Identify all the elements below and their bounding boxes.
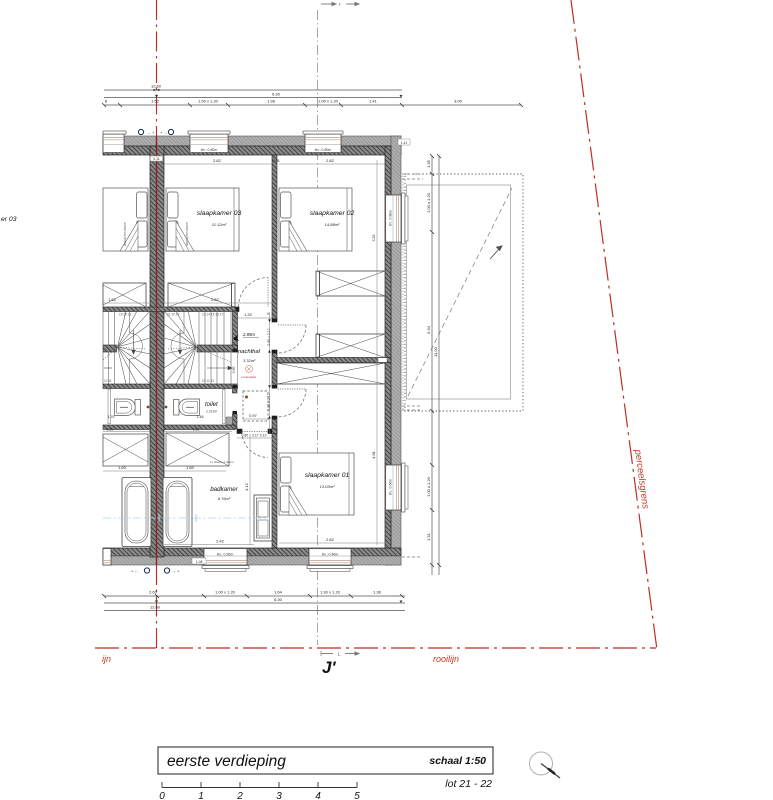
svg-text:6.30: 6.30	[274, 597, 283, 602]
svg-text:2.82: 2.82	[326, 158, 335, 163]
svg-text:0.11: 0.11	[153, 157, 160, 161]
svg-text:1.08: 1.08	[196, 560, 203, 564]
svg-text:14.88m²: 14.88m²	[325, 222, 340, 227]
svg-text:5: 5	[354, 791, 360, 800]
svg-text:8.76m²: 8.76m²	[218, 496, 231, 501]
svg-text:5.94: 5.94	[426, 325, 431, 334]
svg-text:J': J'	[322, 658, 336, 677]
svg-text:1.00 x 1.20: 1.00 x 1.20	[426, 476, 431, 497]
svg-text:toilet: toilet	[205, 402, 218, 408]
svg-text:bh.: 0.60m: bh.: 0.60m	[389, 479, 393, 496]
svg-text:L: L	[338, 652, 341, 658]
svg-text:0.90: 0.90	[232, 367, 236, 374]
svg-text:eerste verdieping: eerste verdieping	[167, 753, 286, 770]
svg-text:3: 3	[276, 791, 282, 800]
svg-text:er 03: er 03	[1, 216, 17, 223]
svg-text:12.60: 12.60	[151, 84, 162, 89]
svg-text:0.80 x 2.17: 0.80 x 2.17	[267, 393, 271, 410]
svg-text:ijn: ijn	[102, 654, 111, 664]
svg-text:1.48: 1.48	[197, 415, 204, 419]
svg-text:1.30 x 1.20: 1.30 x 1.20	[320, 590, 341, 595]
svg-text:1.41: 1.41	[401, 141, 408, 145]
svg-text:2.42: 2.42	[216, 539, 225, 544]
svg-text:13 14 15 16 17: 13 14 15 16 17	[202, 313, 223, 317]
svg-text:0.80 x 2.17: 0.80 x 2.17	[267, 328, 271, 345]
svg-text:0.80 x 2.17 0.10: 0.80 x 2.17 0.10	[241, 434, 266, 438]
svg-text:12 11: 12 11	[104, 379, 112, 383]
svg-text:bh.: 0.80m: bh.: 0.80m	[389, 210, 393, 227]
svg-text:rookmelder: rookmelder	[241, 375, 256, 379]
svg-text:bh.: 0.80m: bh.: 0.80m	[201, 148, 218, 152]
svg-text:1.64: 1.64	[274, 590, 283, 595]
svg-text:4.81: 4.81	[371, 450, 376, 459]
svg-text:bh.: 0.80m: bh.: 0.80m	[315, 148, 332, 152]
svg-text:rooilijn: rooilijn	[433, 654, 459, 664]
svg-text:1.51: 1.51	[426, 532, 431, 541]
svg-text:1.52: 1.52	[107, 428, 114, 432]
svg-text:1.98: 1.98	[267, 99, 276, 104]
svg-text:0.08: 0.08	[273, 159, 280, 163]
svg-text:1.60: 1.60	[186, 465, 195, 470]
svg-text:3.00: 3.00	[454, 99, 463, 104]
svg-text:1.52: 1.52	[193, 428, 200, 432]
svg-text:1x wasba 2 deurs: 1x wasba 2 deurs	[210, 460, 234, 464]
svg-text:aansluiten afvoer: aansluiten afvoer	[123, 221, 127, 246]
svg-text:← +: ← +	[147, 130, 155, 135]
svg-text:1.00 x 1.20: 1.00 x 1.20	[426, 192, 431, 213]
svg-text:1.21m²: 1.21m²	[206, 410, 218, 414]
svg-text:2: 2	[236, 791, 243, 800]
svg-text:1.36: 1.36	[373, 590, 382, 595]
svg-text:4: 4	[315, 791, 321, 800]
svg-text:2.89m: 2.89m	[242, 332, 255, 337]
svg-text:2.82: 2.82	[211, 297, 220, 302]
svg-text:+ ←: + ←	[131, 569, 138, 574]
svg-text:nachthal: nachthal	[238, 349, 261, 355]
svg-text:+ →: + →	[160, 130, 167, 135]
svg-text:2.82: 2.82	[213, 158, 222, 163]
svg-text:lot 21 - 22: lot 21 - 22	[445, 778, 492, 790]
svg-text:3.12: 3.12	[244, 482, 249, 491]
svg-text:10 11 12: 10 11 12	[202, 379, 214, 383]
svg-text:1.41: 1.41	[369, 99, 378, 104]
svg-text:6.30: 6.30	[272, 92, 281, 97]
svg-text:13.03m²: 13.03m²	[320, 484, 335, 489]
svg-text:1.00 x 1.20: 1.00 x 1.20	[215, 590, 236, 595]
svg-text:1.00 x 1.20: 1.00 x 1.20	[318, 99, 339, 104]
svg-text:11.00: 11.00	[433, 346, 438, 356]
svg-text:bh.: 0.40m: bh.: 0.40m	[322, 553, 339, 557]
svg-text:slaapkamer 02: slaapkamer 02	[310, 210, 355, 217]
svg-text:1.60: 1.60	[118, 465, 127, 470]
svg-text:12.60: 12.60	[150, 605, 161, 610]
svg-text:2.60: 2.60	[149, 590, 158, 595]
svg-text:aansluiten afvoer: aansluiten afvoer	[185, 221, 189, 246]
svg-text:0: 0	[159, 791, 165, 800]
svg-text:1.52: 1.52	[151, 99, 160, 104]
svg-text:bh.: 0.90m: bh.: 0.90m	[217, 553, 234, 557]
svg-text:11.12m²: 11.12m²	[212, 222, 227, 227]
svg-text:1.32: 1.32	[244, 312, 253, 317]
svg-text:1.55: 1.55	[426, 159, 431, 168]
svg-text:1.50 x 1.20: 1.50 x 1.20	[198, 99, 219, 104]
svg-text:2.82: 2.82	[326, 537, 335, 542]
svg-text:3.32m²: 3.32m²	[243, 358, 256, 363]
svg-text:1.76: 1.76	[108, 415, 115, 419]
svg-text:0.97: 0.97	[249, 413, 258, 418]
svg-text:5.28: 5.28	[372, 235, 376, 242]
svg-text:badkamer: badkamer	[210, 486, 238, 493]
svg-text:→ +: → +	[172, 569, 180, 574]
svg-text:schaal 1:50: schaal 1:50	[429, 755, 486, 767]
svg-text:21 20 19: 21 20 19	[167, 313, 180, 317]
svg-text:19 20 21: 19 20 21	[119, 313, 132, 317]
svg-text:1.52: 1.52	[108, 297, 117, 302]
svg-text:slaapkamer 01: slaapkamer 01	[305, 472, 350, 479]
svg-text:slaapkamer 03: slaapkamer 03	[197, 210, 242, 217]
svg-text:1: 1	[198, 791, 204, 800]
